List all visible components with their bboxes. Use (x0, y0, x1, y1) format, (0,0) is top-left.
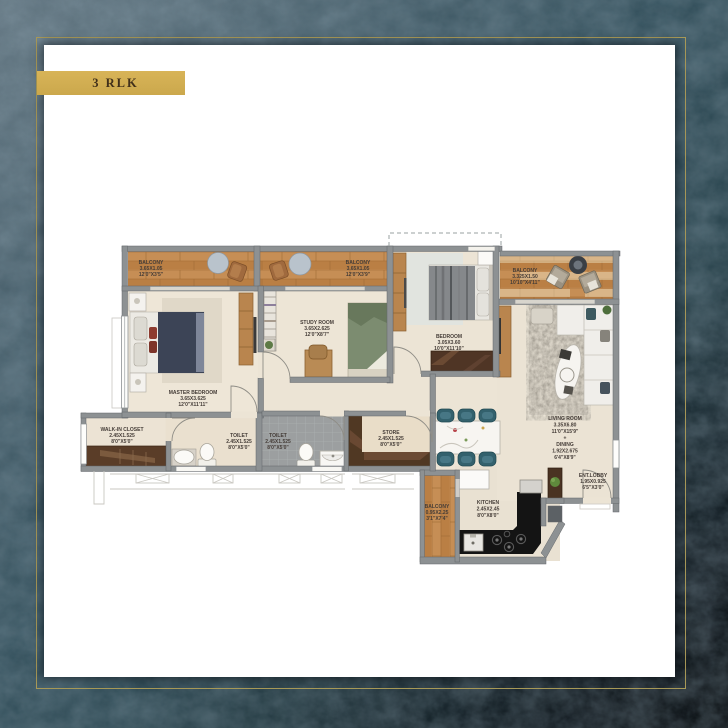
svg-text:11'0"X15'9": 11'0"X15'9" (552, 429, 579, 435)
svg-text:12'0"X11'11": 12'0"X11'11" (178, 402, 208, 408)
svg-text:+: + (564, 436, 567, 442)
svg-text:DINING: DINING (556, 442, 574, 448)
svg-text:3'1"X7'4": 3'1"X7'4" (426, 516, 448, 522)
svg-text:2.45X2.45: 2.45X2.45 (477, 507, 500, 513)
svg-text:8'0"X5'0": 8'0"X5'0" (380, 442, 402, 448)
svg-text:12'0"X3'5": 12'0"X3'5" (139, 272, 164, 278)
svg-text:6'4"X8'9": 6'4"X8'9" (554, 455, 576, 461)
svg-text:10'10"X4'11": 10'10"X4'11" (510, 280, 540, 286)
svg-text:3.35X6.80: 3.35X6.80 (554, 423, 577, 429)
svg-text:KITCHEN: KITCHEN (477, 500, 500, 506)
svg-text:LIVING ROOM: LIVING ROOM (548, 416, 582, 422)
svg-text:8'0"X5'0": 8'0"X5'0" (111, 439, 133, 445)
svg-text:1.92X2.675: 1.92X2.675 (552, 449, 578, 455)
svg-text:10'0"X11'10": 10'0"X11'10" (434, 346, 464, 352)
svg-text:12'0"X8'7": 12'0"X8'7" (305, 332, 330, 338)
svg-text:8'0"X5'0": 8'0"X5'0" (267, 445, 289, 451)
svg-text:12'0"X3'9": 12'0"X3'9" (346, 272, 371, 278)
svg-text:8'0"X5'0": 8'0"X5'0" (228, 445, 250, 451)
svg-text:8'0"X8'0": 8'0"X8'0" (477, 513, 499, 519)
svg-text:6'5"X3'0": 6'5"X3'0" (582, 485, 604, 491)
